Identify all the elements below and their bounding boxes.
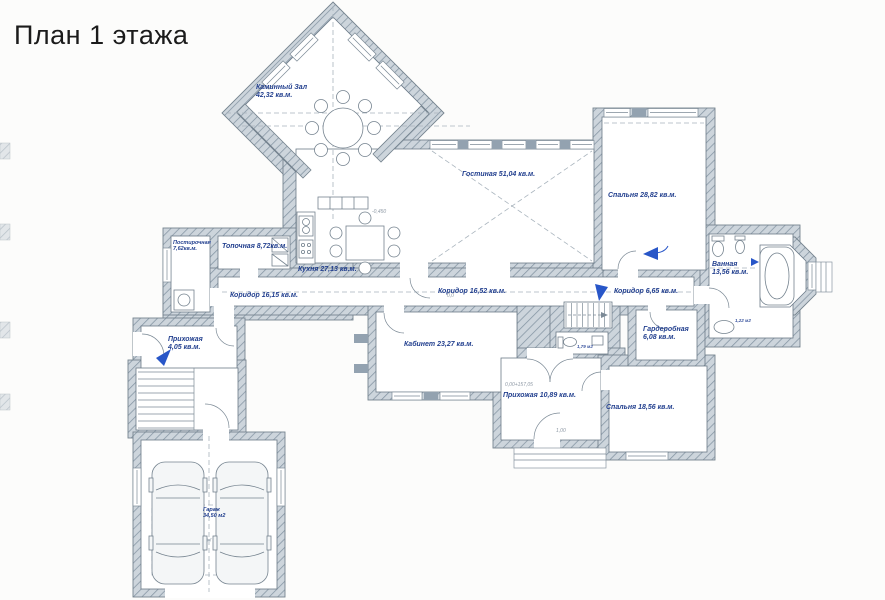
bedroom1-floor xyxy=(602,117,706,270)
hallway-main-floor xyxy=(501,358,601,440)
bedroom2-floor xyxy=(609,366,707,452)
toilet-icon xyxy=(712,236,724,257)
washing-machine xyxy=(174,290,194,310)
study-wall-piers xyxy=(354,334,368,373)
scan-edge-marks xyxy=(0,143,10,410)
corridor-floor xyxy=(218,277,694,306)
entrance-porch-steps xyxy=(514,448,606,468)
bidet-icon xyxy=(735,236,745,254)
round-table xyxy=(306,91,381,166)
page-title: План 1 этажа xyxy=(14,20,188,51)
wardrobe-floor xyxy=(636,310,697,360)
sink-icon xyxy=(714,321,734,334)
study-floor xyxy=(376,312,517,392)
floor-plan-drawing xyxy=(0,0,885,600)
bathtub-icon xyxy=(760,247,794,305)
boiler-units xyxy=(272,238,288,266)
bay-porch-steps xyxy=(816,262,832,292)
car-icon xyxy=(149,462,207,584)
bedroom1-windows xyxy=(604,109,698,118)
car-icon xyxy=(213,462,271,584)
floor-plan-page: План 1 этажа Каминный Зал42,32 кв.м.Гост… xyxy=(0,0,885,600)
bedroom2-window xyxy=(626,452,668,460)
